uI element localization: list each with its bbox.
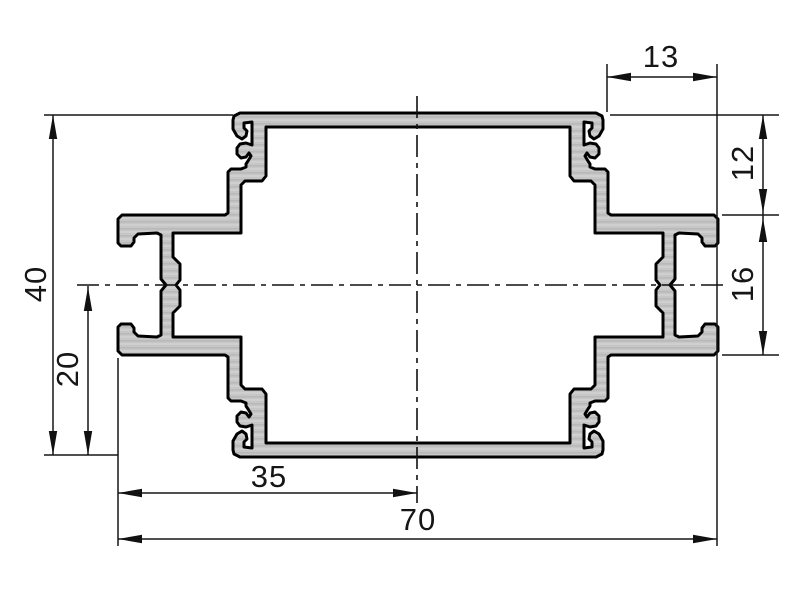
dim-label-flange-span: 16 <box>725 266 760 302</box>
dim-label-upper-step-height: 12 <box>725 145 760 181</box>
drawing-canvas: 40 20 35 70 13 12 16 <box>0 0 800 600</box>
arrow-40-top <box>49 115 57 139</box>
arrow-40-bottom <box>49 431 57 455</box>
arrow-16-bottom <box>759 331 767 355</box>
arrow-20-top <box>84 287 92 311</box>
dim-label-half-height: 20 <box>50 351 85 387</box>
arrow-70-left <box>118 535 142 543</box>
dim-label-top-notch-width: 13 <box>643 39 679 74</box>
dim-label-total-width: 70 <box>400 502 436 537</box>
arrow-70-right <box>693 535 717 543</box>
arrow-16-top <box>759 218 767 242</box>
arrow-35-right <box>393 489 417 497</box>
dim-label-half-width: 35 <box>251 459 287 494</box>
arrow-13-right <box>693 73 717 81</box>
arrow-20-bottom <box>84 431 92 455</box>
arrow-13-left <box>607 73 631 81</box>
arrow-35-left <box>118 489 142 497</box>
dim-label-total-height: 40 <box>18 266 53 302</box>
profile-technical-drawing: 40 20 35 70 13 12 16 <box>0 0 800 600</box>
arrow-12-bottom <box>759 189 767 213</box>
arrow-12-top <box>759 115 767 139</box>
